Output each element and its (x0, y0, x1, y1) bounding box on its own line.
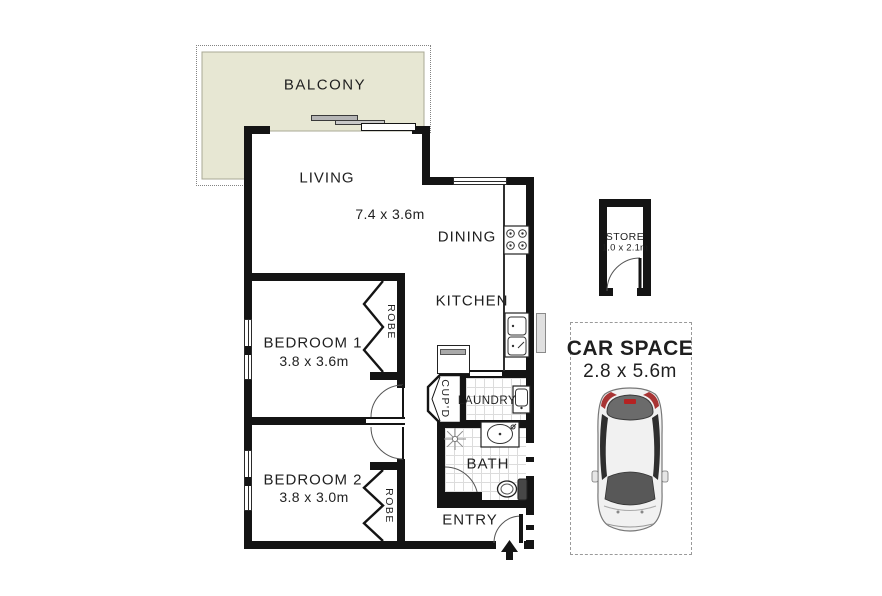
store-label: STORE (606, 231, 644, 243)
bifold-robe2-icon (364, 470, 383, 541)
vanity-basin-icon (481, 422, 519, 447)
cupboard-label: CUP'D (439, 379, 451, 418)
bedroom1-door-arc-icon (371, 385, 403, 417)
car-icon (592, 388, 668, 531)
ceiling-light-icon (444, 428, 466, 450)
car-space-label: CAR SPACE (567, 337, 694, 361)
floor-plan: BALCONY LIVING 7.4 x 3.6m DINING KITCHEN… (0, 0, 882, 596)
entry-arrow-icon (501, 540, 518, 560)
bedroom2-door-arc-icon (371, 427, 403, 459)
laundry-label: LAUNDRY (458, 395, 516, 407)
kitchen-label: KITCHEN (436, 293, 509, 310)
bedroom1-label: BEDROOM 1 (263, 335, 362, 352)
sink-icon (505, 313, 529, 357)
bedroom1-dims: 3.8 x 3.6m (279, 353, 348, 369)
bath-label: BATH (467, 456, 510, 473)
dining-label: DINING (438, 229, 497, 246)
toilet-icon (498, 479, 528, 500)
store-dims: 1.0 x 2.1m (602, 243, 648, 254)
bedroom2-dims: 3.8 x 3.0m (279, 489, 348, 505)
bifold-robe-icon (364, 281, 383, 372)
entry-door-arc-icon (494, 514, 521, 543)
cooktop-icon (504, 226, 529, 254)
robe2-label: ROBE (383, 488, 395, 524)
robe1-label: ROBE (385, 304, 397, 340)
balcony-label: BALCONY (284, 77, 366, 94)
living-label: LIVING (299, 170, 354, 187)
entry-label: ENTRY (442, 512, 498, 529)
car-space-dims: 2.8 x 5.6m (583, 361, 677, 383)
store-door-arc-icon (607, 258, 640, 291)
bedroom2-label: BEDROOM 2 (263, 472, 362, 489)
living-dims: 7.4 x 3.6m (355, 206, 424, 222)
